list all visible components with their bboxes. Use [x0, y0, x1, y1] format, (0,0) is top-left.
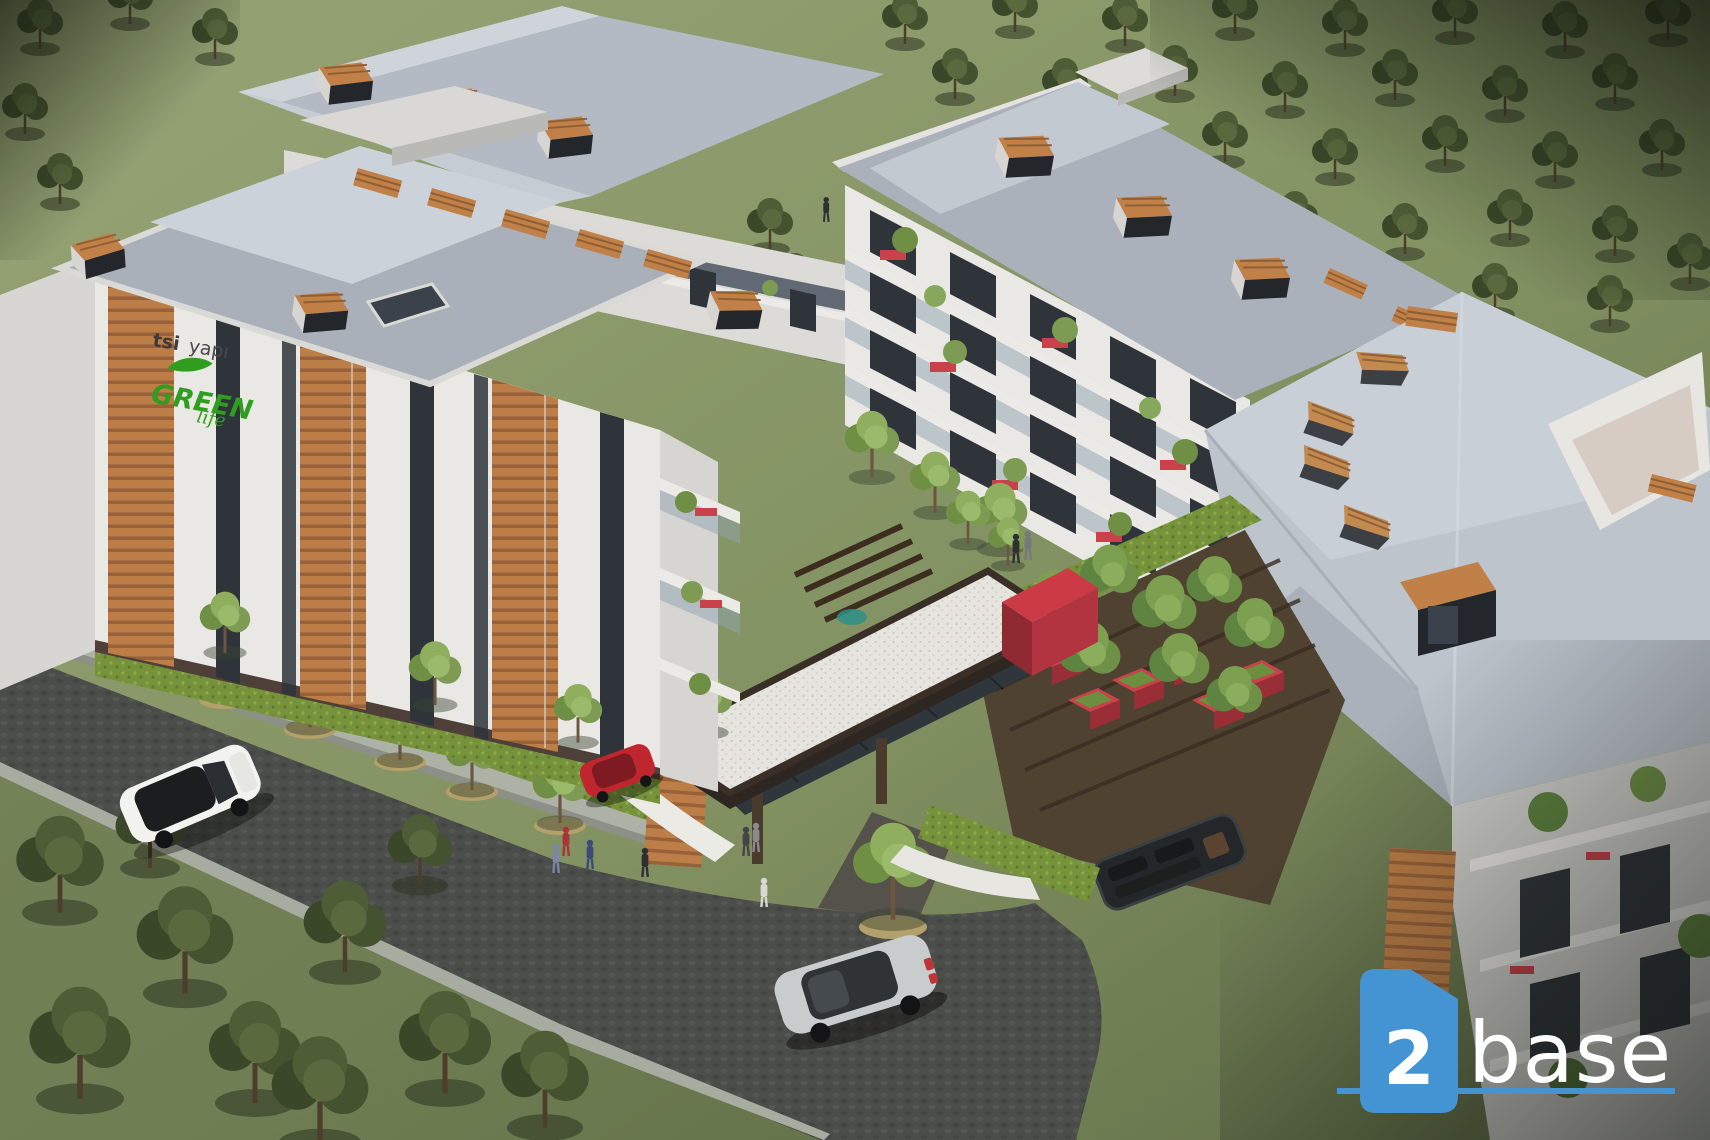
render-canvas: tsi yapı GREEN life: [0, 0, 1710, 1140]
signage-tsi: tsi: [151, 329, 181, 355]
render-image: tsi yapı GREEN life: [0, 0, 1710, 1140]
watermark-number: 2: [1383, 1016, 1435, 1102]
watermark-name: base: [1468, 1004, 1672, 1102]
